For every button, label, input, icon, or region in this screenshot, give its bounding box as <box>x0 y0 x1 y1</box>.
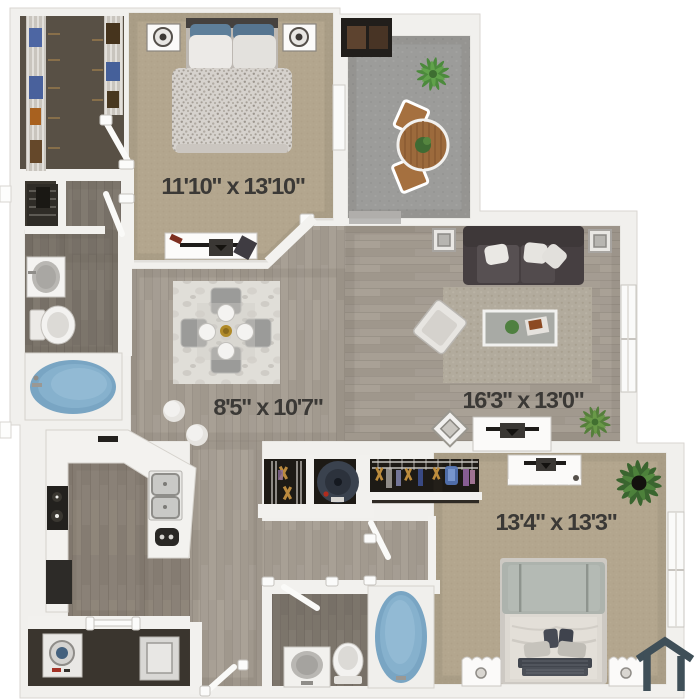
svg-text:11'10" x 13'10": 11'10" x 13'10" <box>161 173 305 199</box>
svg-text:16'3" x 13'0": 16'3" x 13'0" <box>462 387 583 413</box>
svg-text:13'4" x 13'3": 13'4" x 13'3" <box>495 509 616 535</box>
svg-text:8'5" x 10'7": 8'5" x 10'7" <box>213 394 322 420</box>
